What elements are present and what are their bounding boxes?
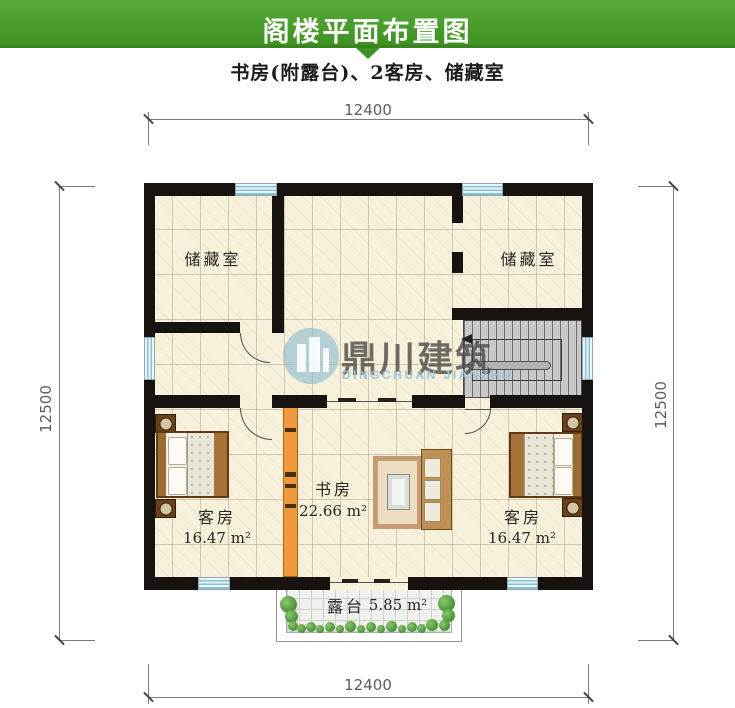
pillow xyxy=(554,467,573,495)
blanket xyxy=(524,434,554,496)
blanket xyxy=(187,433,216,496)
lamp xyxy=(159,417,172,430)
room-area-terrace: 5.85 m² xyxy=(369,596,427,614)
dimension-left-value: 12500 xyxy=(37,369,55,449)
headboard xyxy=(573,434,581,496)
plant xyxy=(439,620,450,631)
extension-line xyxy=(59,186,95,187)
plant xyxy=(386,621,397,632)
door-dash xyxy=(338,398,356,402)
extension-line xyxy=(638,186,674,187)
study-table xyxy=(387,474,410,510)
dimension-line-left xyxy=(59,186,60,640)
pillow xyxy=(168,437,187,465)
wall-study-left-stub xyxy=(272,395,327,408)
plant xyxy=(366,622,376,632)
nightstand xyxy=(155,499,176,518)
room-label-guest-left: 客房 xyxy=(198,504,236,528)
sofa-cushion xyxy=(424,480,441,500)
logo-building-bar xyxy=(309,337,320,372)
wall-exterior-left xyxy=(144,183,155,590)
window-bottom-right xyxy=(507,577,538,590)
lamp xyxy=(159,502,172,515)
wall-exterior-right xyxy=(582,183,593,590)
shelf-mark xyxy=(285,472,296,477)
shelf-mark xyxy=(285,504,296,508)
window-right-wall xyxy=(582,337,593,380)
bed-right xyxy=(509,432,583,498)
shelf-mark xyxy=(285,428,296,432)
room-label-storage-left: 储藏室 xyxy=(184,246,241,270)
dimension-line-right xyxy=(673,186,674,640)
room-label-study: 书房 xyxy=(315,476,353,500)
bed-foot xyxy=(511,434,524,496)
door-dash xyxy=(374,579,390,583)
bed-left xyxy=(156,431,229,498)
plant xyxy=(417,624,426,633)
nightstand xyxy=(562,413,583,432)
wall-guest-right-top xyxy=(490,395,593,408)
room-area-guest-right: 16.47 m² xyxy=(488,529,556,547)
plant xyxy=(316,625,324,633)
bookshelf-cabinet xyxy=(283,400,298,577)
lamp xyxy=(566,416,579,429)
room-area-guest-left: 16.47 m² xyxy=(183,529,251,547)
wall-exterior-top xyxy=(144,183,593,196)
logo-building-bar xyxy=(323,348,329,372)
dimension-bottom-value: 12400 xyxy=(308,676,428,694)
room-label-storage-right: 储藏室 xyxy=(500,246,557,270)
dimension-line-bottom xyxy=(148,697,588,698)
nightstand xyxy=(562,498,583,517)
plant xyxy=(306,622,316,632)
plant xyxy=(377,625,385,633)
lamp xyxy=(566,501,579,514)
window-left-wall xyxy=(144,337,155,380)
pillow xyxy=(168,467,187,495)
door-dash xyxy=(342,579,358,583)
plant xyxy=(336,625,344,633)
window-top-left xyxy=(235,183,277,196)
page-subtitle: 书房(附露台)、2客房、储藏室 xyxy=(0,58,735,85)
logo-building-bar xyxy=(297,344,306,372)
dimension-line-top xyxy=(148,119,588,120)
plant xyxy=(345,621,356,632)
pillow xyxy=(554,438,573,466)
plant xyxy=(325,622,335,632)
watermark-latin-name: DINGCHUAN JIANZHU xyxy=(342,368,513,382)
wall-storage-right-a xyxy=(452,196,463,223)
dimension-top-value: 12400 xyxy=(308,101,428,119)
sofa-cushion xyxy=(424,502,441,522)
shelf-mark xyxy=(285,484,296,488)
bed-foot xyxy=(214,433,227,496)
room-label-terrace: 露台 xyxy=(327,593,365,617)
page-title: 阁楼平面布置图 xyxy=(0,10,735,49)
window-bottom-left xyxy=(198,577,230,590)
plant xyxy=(357,625,365,633)
wall-study-right-stub xyxy=(412,395,465,408)
watermark-logo-icon xyxy=(283,328,339,384)
wall-storage-left-bottom xyxy=(144,322,240,333)
wall-guest-left-top xyxy=(144,395,240,408)
plant xyxy=(398,625,406,633)
wall-stair-top xyxy=(452,308,593,320)
extension-line xyxy=(59,640,95,641)
room-area-study: 22.66 m² xyxy=(299,502,367,520)
extension-line xyxy=(638,640,674,641)
plant xyxy=(297,624,306,633)
room-label-guest-right: 客房 xyxy=(504,504,542,528)
door-dash xyxy=(378,398,396,402)
window-top-right xyxy=(462,183,503,196)
headboard xyxy=(158,433,166,496)
plant xyxy=(426,619,438,631)
sofa-cushion xyxy=(424,458,441,478)
wall-storage-right-b xyxy=(452,252,463,273)
floor-plan-page: 阁楼平面布置图 书房(附露台)、2客房、储藏室 12400 12400 1250… xyxy=(0,0,735,708)
study-sofa xyxy=(421,449,452,530)
wall-storage-left xyxy=(272,196,284,333)
plant xyxy=(407,622,417,632)
dimension-right-value: 12500 xyxy=(652,365,670,445)
